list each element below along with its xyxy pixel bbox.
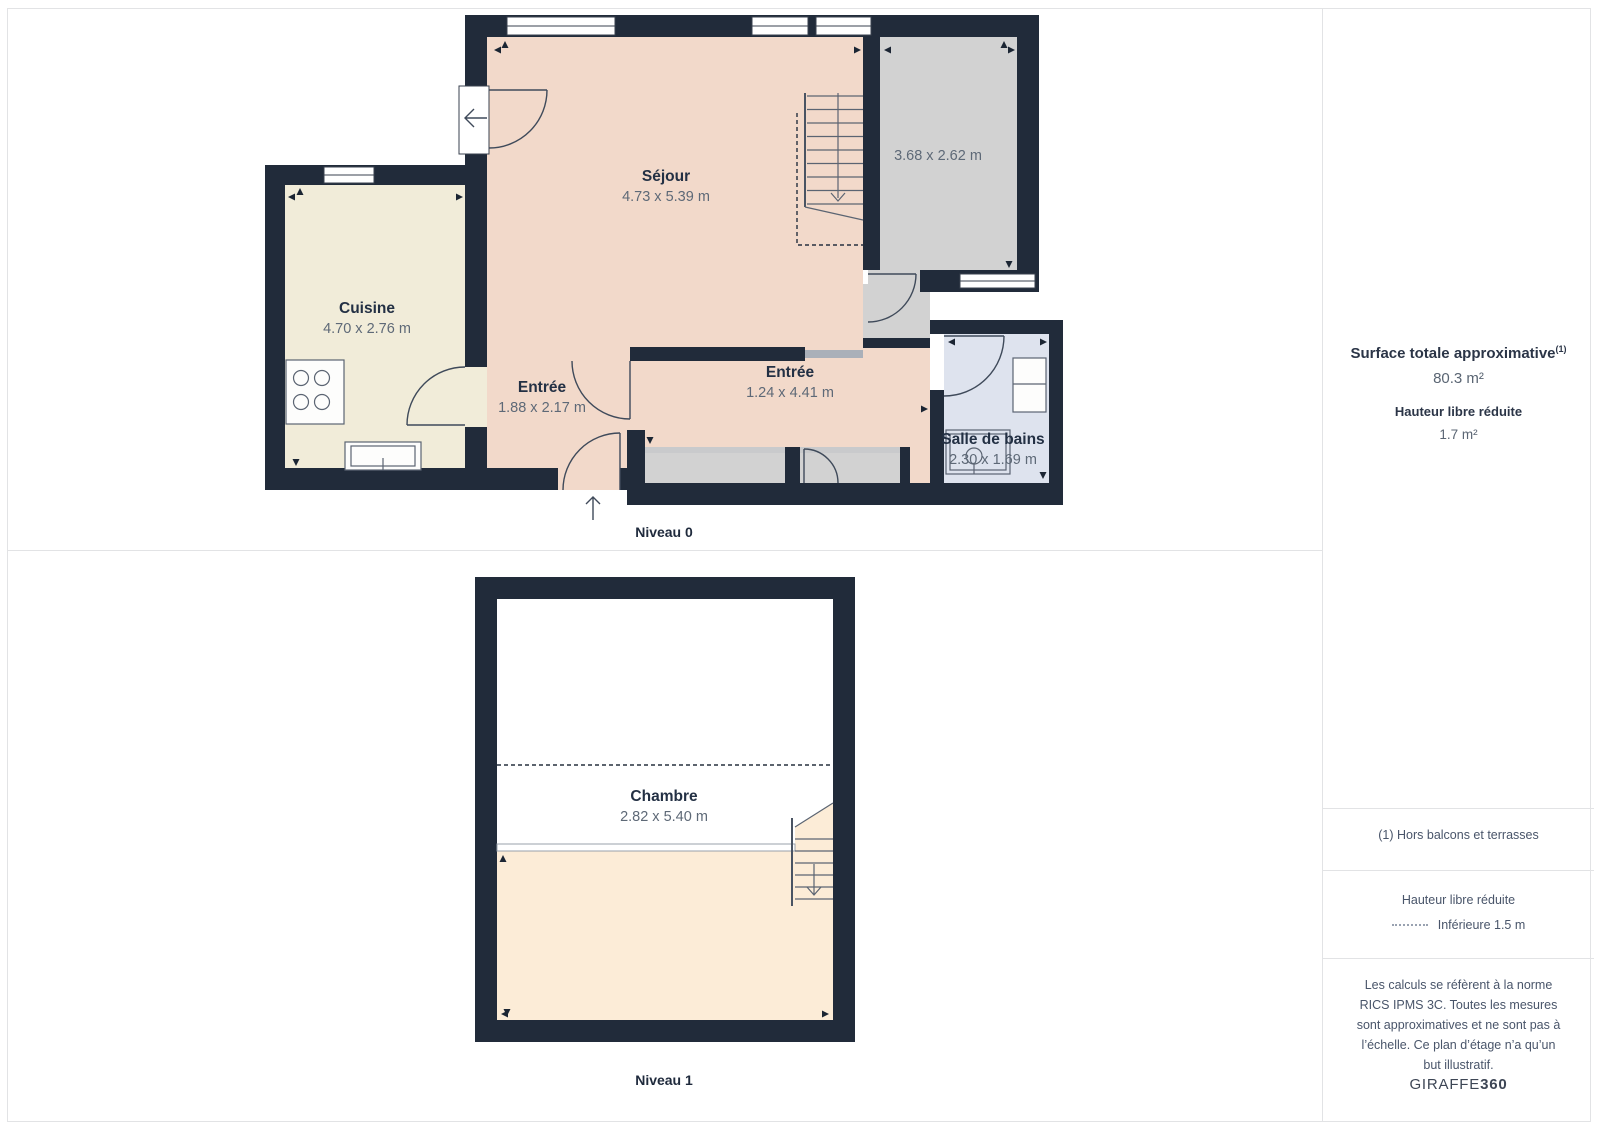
level1-title: Niveau 1	[564, 1072, 764, 1088]
reduced-height-title: Hauteur libre réduite	[1323, 404, 1594, 419]
entrance-door-gap	[558, 468, 620, 490]
stove-icon	[286, 360, 344, 424]
level0-plan	[260, 10, 1070, 525]
footnote-marker: (1)	[1556, 344, 1567, 354]
legend-row: Inférieure 1.5 m	[1323, 918, 1594, 932]
entrance-arrow-icon	[586, 497, 600, 520]
closet2-sliding-band	[800, 447, 910, 453]
low-wall-under-stairs	[805, 350, 863, 358]
front-niche	[459, 86, 489, 154]
giraffe360-logo: GIRAFFE360	[1323, 1076, 1594, 1093]
sejour-floor	[487, 37, 863, 361]
closet1-floor	[645, 453, 785, 483]
sidebar-divider-2	[1323, 870, 1594, 871]
vestibule-floor	[863, 284, 930, 338]
cuisine-door-gap	[465, 367, 487, 427]
closet2-floor	[800, 453, 910, 483]
disclaimer-text: Les calculs se réfèrent à la norme RICS …	[1323, 975, 1594, 1075]
info-sidebar: Surface totale approximative(1) 80.3 m² …	[1322, 8, 1593, 1122]
entree2-floor-column	[910, 447, 930, 483]
level1-room-fills	[497, 599, 833, 1020]
entree1-floor	[487, 347, 630, 468]
chambre-low-ceiling-floor	[497, 599, 833, 848]
legend-item-label: Inférieure 1.5 m	[1438, 918, 1526, 932]
surface-total-value: 80.3 m²	[1323, 370, 1594, 387]
dotted-line-icon	[1392, 924, 1428, 926]
footnote-text: (1) Hors balcons et terrasses	[1323, 828, 1594, 842]
level1-plan	[470, 570, 862, 1050]
closet1-sliding-band	[645, 447, 785, 453]
levels-divider-line	[7, 550, 1323, 551]
kitchen-sink-icon	[345, 442, 421, 470]
sidebar-divider-3	[1323, 958, 1594, 959]
floorplan-page: Séjour 4.73 x 5.39 m 3.68 x 2.62 m Cuisi…	[0, 0, 1600, 1131]
sidebar-divider-1	[1323, 808, 1594, 809]
surface-total-title: Surface totale approximative(1)	[1323, 344, 1594, 362]
reduced-height-value: 1.7 m²	[1323, 427, 1594, 442]
chambre-floor	[497, 851, 833, 1020]
floor-edge-line	[497, 844, 795, 851]
level0-title: Niveau 0	[564, 524, 764, 540]
legend-title: Hauteur libre réduite	[1323, 893, 1594, 907]
gray-room-floor	[880, 37, 1017, 270]
bathroom-sink-icon	[1013, 358, 1046, 412]
